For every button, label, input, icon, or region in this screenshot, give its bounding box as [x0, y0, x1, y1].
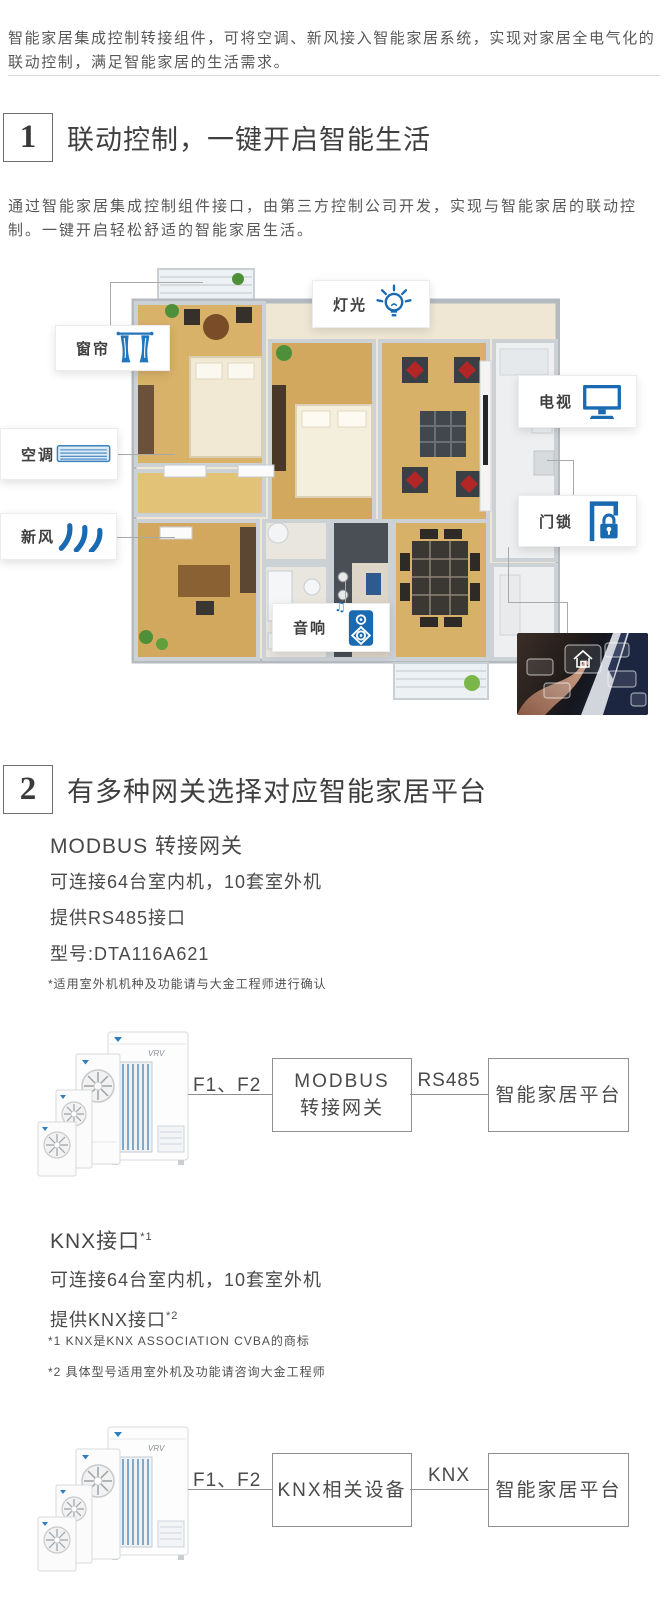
divider	[8, 75, 661, 76]
light-bulb-icon	[373, 283, 415, 325]
curtain-connector-h	[110, 282, 203, 283]
modbus-diagram: VRV	[0, 1030, 669, 1180]
smart-home-figure: 窗帘 灯光	[0, 255, 669, 720]
knx-spec-2-sup: *2	[166, 1310, 178, 1322]
lock-connector-top-h	[547, 460, 573, 461]
ac-connector	[118, 454, 175, 455]
door-lock-icon	[584, 500, 622, 542]
knx-subtitle: KNX接口*1	[50, 1225, 153, 1255]
fresh-air-label: 新风	[21, 526, 55, 547]
knx-subtitle-text: KNX接口	[50, 1230, 140, 1253]
section2-number-box: 2	[3, 765, 53, 814]
modbus-footnote: *适用室外机机种及功能请与大金工程师进行确认	[48, 975, 327, 992]
music-note-icon: ♫	[334, 600, 346, 615]
speaker-icon: ♫	[347, 608, 375, 648]
modbus-gateway-line1: MODBUS	[294, 1068, 389, 1095]
modbus-spec-1: 可连接64台室内机，10套室外机	[50, 864, 322, 900]
curtain-icon	[115, 330, 155, 366]
callout-light: 灯光	[312, 280, 430, 328]
knx-device-label: KNX相关设备	[277, 1477, 406, 1504]
modbus-platform-label: 智能家居平台	[495, 1082, 621, 1109]
curtain-label: 窗帘	[76, 338, 110, 359]
audio-label: 音响	[293, 617, 327, 638]
modbus-wire1-line	[188, 1094, 272, 1095]
modbus-specs: 可连接64台室内机，10套室外机 提供RS485接口 型号:DTA116A621	[50, 864, 322, 972]
knx-device-node: KNX相关设备	[272, 1453, 412, 1527]
vrv-outdoor-units-image: VRV	[36, 1030, 192, 1178]
ac-vent-icon	[55, 443, 113, 465]
knx-subtitle-sup: *1	[140, 1231, 152, 1243]
modbus-subtitle: MODBUS 转接网关	[50, 830, 243, 860]
section1-description: 通过智能家居集成控制组件接口，由第三方控制公司开发，实现与智能家居的联动控制。一…	[8, 195, 661, 243]
fresh-air-connector	[117, 537, 175, 538]
callout-door-lock: 门锁	[518, 495, 637, 547]
knx-platform-label: 智能家居平台	[495, 1477, 621, 1504]
section1-number-box: 1	[3, 113, 53, 162]
lock-connector-bottom-h	[508, 602, 568, 603]
knx-footnote-1: *1 KNX是KNX ASSOCIATION CVBA的商标	[48, 1332, 310, 1349]
modbus-gateway-node: MODBUS 转接网关	[272, 1058, 412, 1132]
knx-specs: 可连接64台室内机，10套室外机 提供KNX接口*2	[50, 1262, 322, 1338]
knx-wire2-label: KNX	[410, 1465, 488, 1487]
modbus-gateway-line2: 转接网关	[300, 1095, 384, 1122]
section2-header: 2 有多种网关选择对应智能家居平台	[3, 765, 487, 814]
knx-footnote-2: *2 具体型号适用室外机及功能请咨询大金工程师	[48, 1363, 326, 1380]
knx-diagram: VRV	[0, 1425, 669, 1575]
light-label: 灯光	[333, 294, 367, 315]
page: 智能家居集成控制转接组件，可将空调、新风接入智能家居系统，实现对家居全电气化的联…	[0, 0, 669, 1600]
door-lock-label: 门锁	[539, 511, 573, 532]
modbus-spec-3: 型号:DTA116A621	[50, 936, 322, 972]
callout-ac: 空调	[0, 428, 118, 480]
knx-platform-node: 智能家居平台	[488, 1453, 629, 1527]
section1-title: 联动控制，一键开启智能生活	[67, 118, 431, 157]
section2-title: 有多种网关选择对应智能家居平台	[67, 770, 487, 809]
lock-connector-bottom-v2	[567, 602, 568, 633]
knx-spec-2-text: 提供KNX接口	[50, 1310, 166, 1330]
tv-label: 电视	[539, 391, 573, 412]
knx-wire1-line	[188, 1489, 272, 1490]
callout-fresh-air: 新风	[0, 513, 117, 560]
knx-wire1-label: F1、F2	[193, 1465, 255, 1492]
intro-paragraph: 智能家居集成控制转接组件，可将空调、新风接入智能家居系统，实现对家居全电气化的联…	[8, 27, 661, 76]
lock-connector-top-v	[573, 460, 574, 495]
callout-audio: 音响 ♫	[272, 603, 390, 652]
callout-tv: 电视	[518, 375, 637, 428]
modbus-wire2-line	[410, 1094, 488, 1095]
curtain-connector-v	[110, 282, 111, 325]
vrv-outdoor-units-image-2: VRV	[36, 1425, 192, 1573]
modbus-wire1-label: F1、F2	[193, 1070, 255, 1097]
ac-label: 空调	[21, 444, 55, 465]
section1-header: 1 联动控制，一键开启智能生活	[3, 113, 431, 162]
modbus-spec-2: 提供RS485接口	[50, 900, 322, 936]
lock-connector-bottom-v1	[508, 547, 509, 602]
knx-spec-1: 可连接64台室内机，10套室外机	[50, 1262, 322, 1298]
touch-control-photo	[517, 633, 648, 715]
svg-text:VRV: VRV	[148, 1444, 165, 1453]
modbus-platform-node: 智能家居平台	[488, 1058, 629, 1132]
modbus-wire2-label: RS485	[410, 1070, 488, 1092]
callout-curtain: 窗帘	[55, 325, 170, 371]
tv-icon	[582, 384, 622, 420]
wind-icon	[55, 522, 107, 552]
svg-text:VRV: VRV	[148, 1049, 165, 1058]
knx-wire2-line	[410, 1489, 488, 1490]
